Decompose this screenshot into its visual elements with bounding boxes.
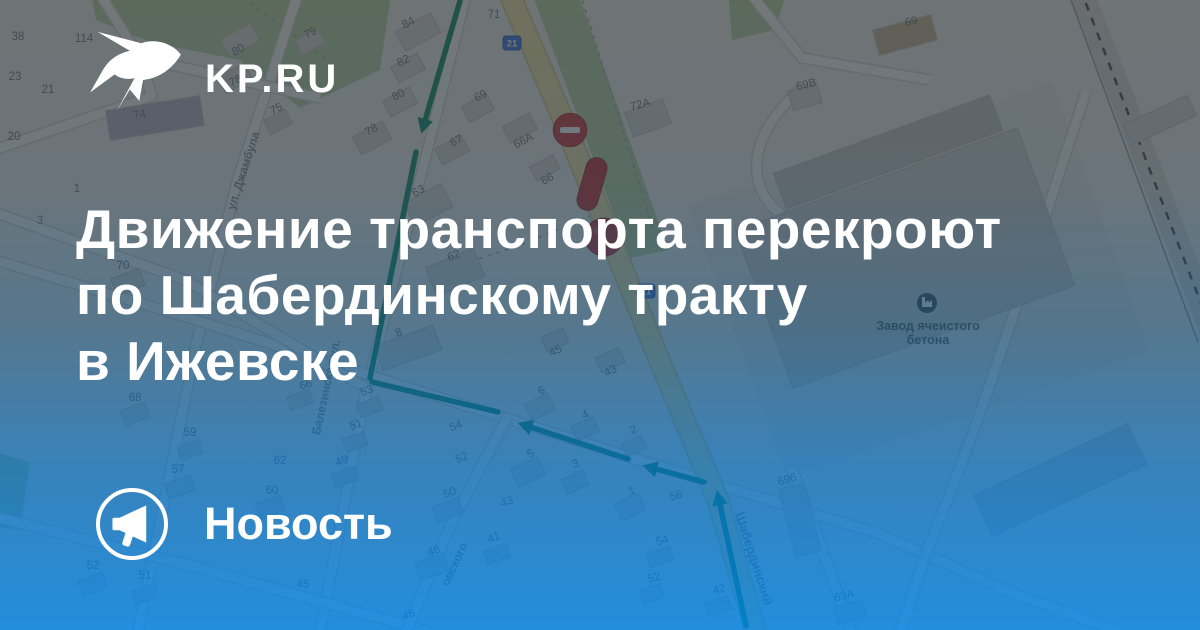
map-house-number: 23 <box>9 71 22 83</box>
map-house-number: 52 <box>454 450 470 466</box>
map-building <box>561 470 590 495</box>
map-building <box>395 13 441 51</box>
map-building <box>131 583 158 604</box>
map-building <box>483 543 510 564</box>
map-building <box>120 402 150 426</box>
news-type-circle <box>96 488 168 560</box>
kp-logo: KP.RU <box>88 30 339 115</box>
headline-line-2: по Шабердинскому тракту <box>76 262 1096 328</box>
map-building <box>973 424 1146 537</box>
map-building <box>331 466 358 487</box>
no-entry-bar <box>560 127 580 133</box>
map-house-number: 20 <box>8 131 21 143</box>
map-building <box>78 572 108 596</box>
map-building <box>704 595 731 616</box>
map-house-number: 52 <box>87 560 100 572</box>
map-house-number: 71 <box>488 9 501 21</box>
news-type-label: Новость <box>204 498 393 550</box>
map-house-number: 3 <box>37 215 43 227</box>
article-headline: Движение транспорта перекроют по Шаберди… <box>76 196 1096 394</box>
map-house-number: 2 <box>628 423 639 437</box>
map-house-number: 54 <box>448 418 465 434</box>
map-house-number: 62 <box>274 455 287 467</box>
map-house-number: 51 <box>139 570 152 582</box>
map-house-number: 38 <box>12 31 25 43</box>
news-type-row: Новость <box>96 488 393 560</box>
map-house-number: 56 <box>668 489 683 504</box>
bus-route-badge-number: 21 <box>507 39 518 50</box>
map-house-number: 5 <box>525 447 536 461</box>
map-house-number: 41 <box>486 530 502 546</box>
map-house-number: 57 <box>172 464 185 476</box>
map-house-number: 1 <box>626 484 637 498</box>
map-building <box>646 546 673 567</box>
kp-logo-text: KP.RU <box>205 57 339 102</box>
map-house-number: 45 <box>297 579 310 591</box>
map-house-number: 59 <box>184 427 197 439</box>
megaphone-icon <box>100 488 164 560</box>
news-preview-card: 3811423212013748078797584828078716967636… <box>0 0 1200 630</box>
map-house-number: 3 <box>570 457 581 471</box>
map-house-number: 42 <box>711 583 726 598</box>
map-building <box>639 584 664 605</box>
map-building <box>510 457 546 488</box>
map-house-number: 43 <box>499 494 515 510</box>
swallow-bird-icon <box>88 30 183 115</box>
map-building <box>342 432 367 453</box>
map-building <box>621 435 647 457</box>
map-house-number: 21 <box>42 84 55 96</box>
headline-line-3: в Ижевске <box>76 328 1096 394</box>
headline-line-1: Движение транспорта перекроют <box>76 196 1096 262</box>
map-house-number: 1 <box>74 183 80 195</box>
